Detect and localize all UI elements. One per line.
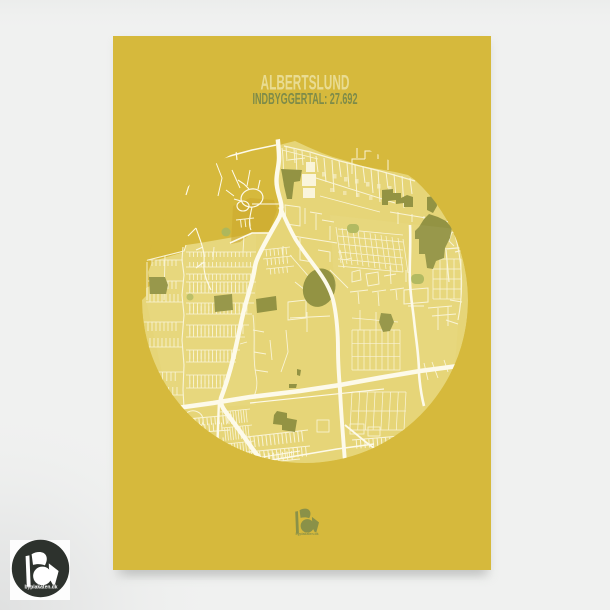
svg-text:byplakaten.dk: byplakaten.dk [25,585,58,591]
svg-text:INDBYGGERTAL: 27.692: INDBYGGERTAL: 27.692 [253,91,358,108]
svg-text:byplakaten.dk: byplakaten.dk [296,532,319,536]
